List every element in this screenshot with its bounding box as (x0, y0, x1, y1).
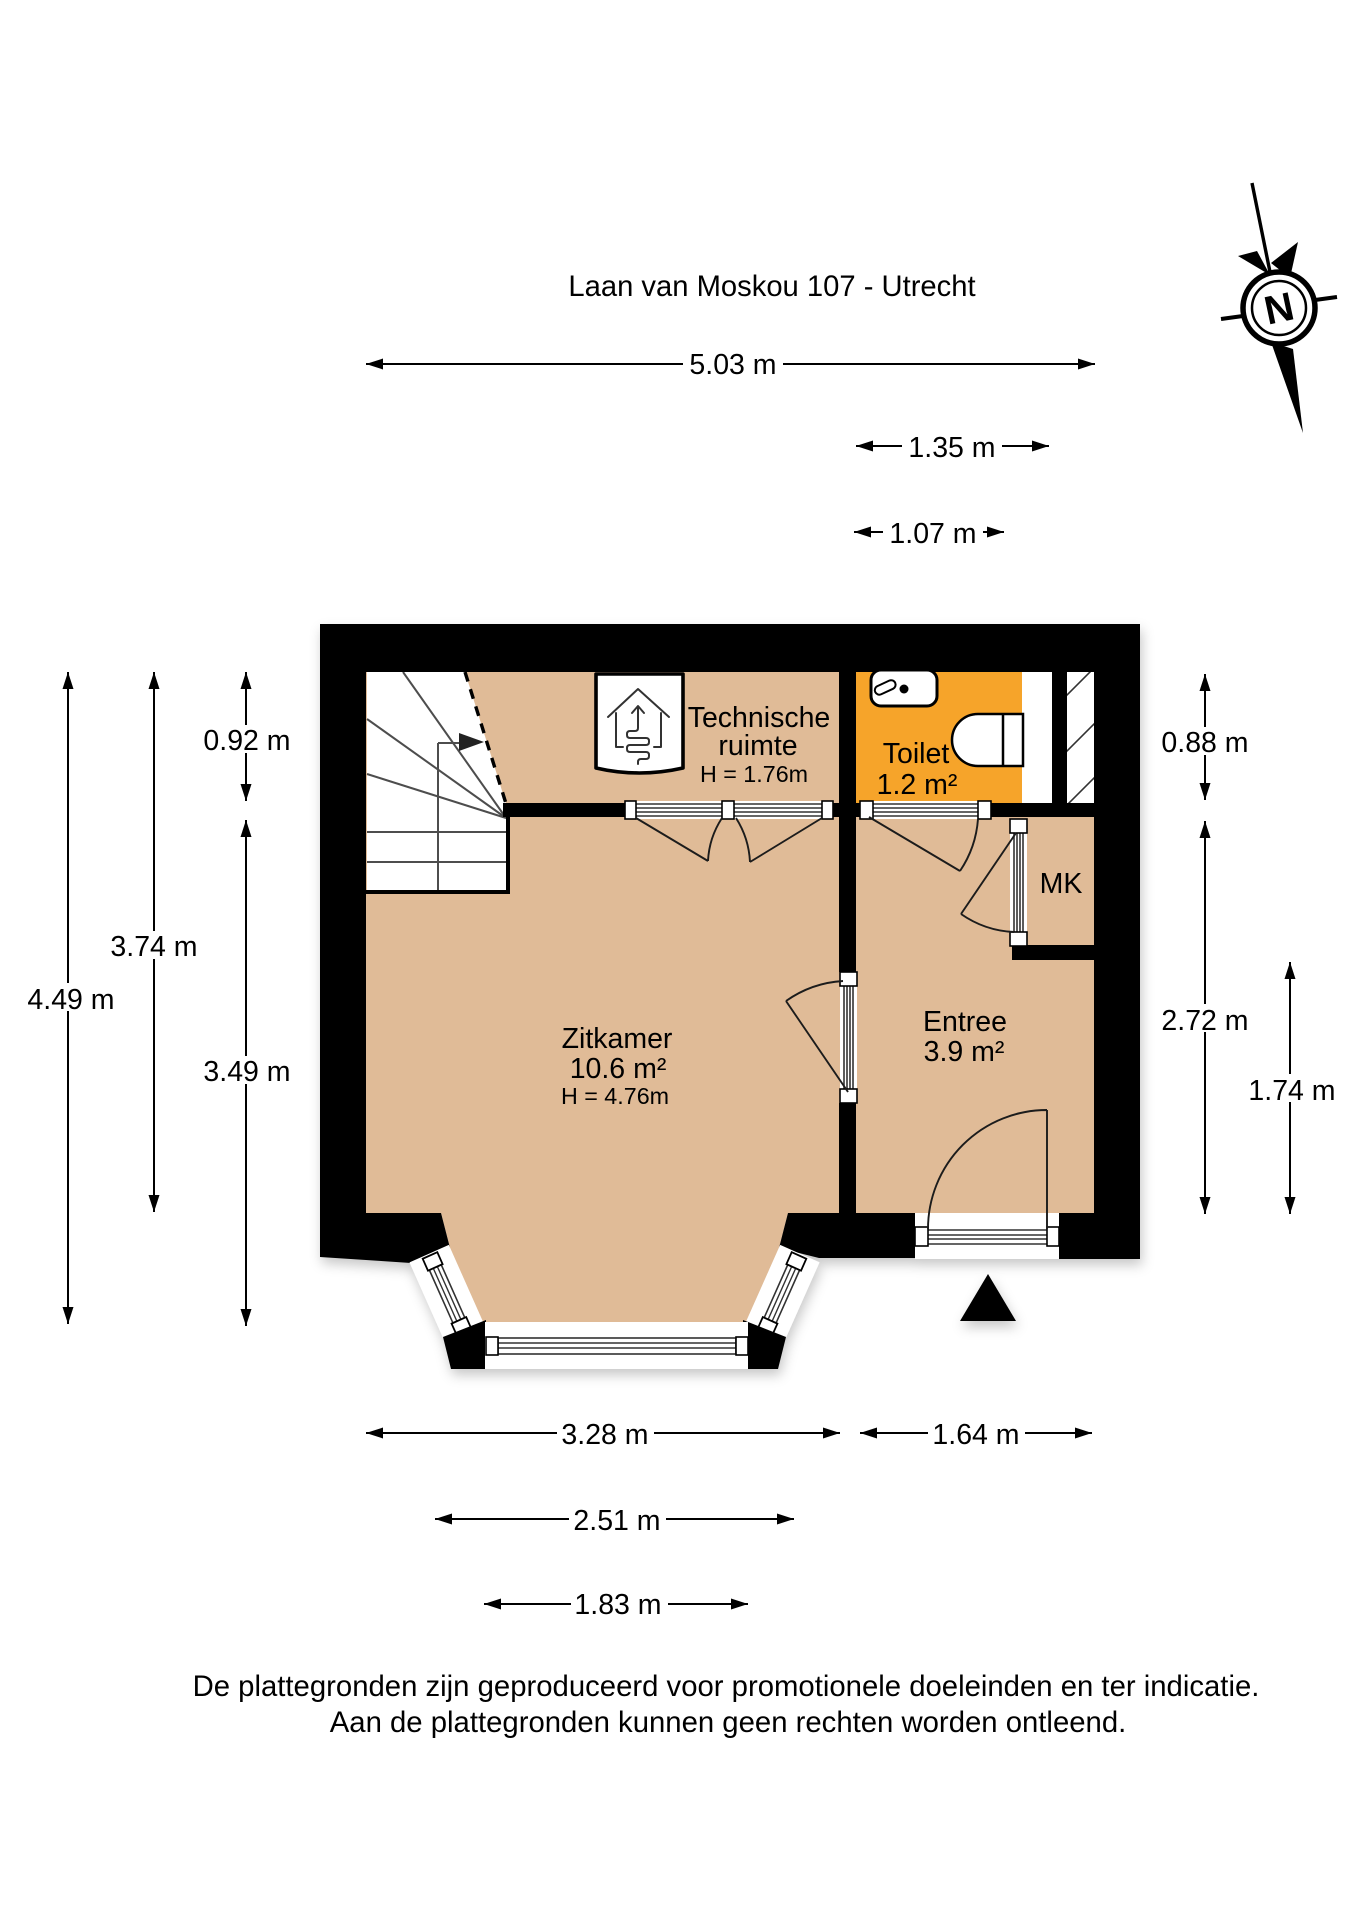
svg-text:1.2 m²: 1.2 m² (877, 769, 958, 801)
svg-text:MK: MK (1040, 868, 1083, 900)
svg-text:3.74 m: 3.74 m (110, 931, 197, 963)
svg-text:1.64 m: 1.64 m (932, 1419, 1019, 1451)
svg-text:3.9 m²: 3.9 m² (924, 1036, 1005, 1068)
svg-text:1.35 m: 1.35 m (908, 432, 995, 464)
svg-text:H = 1.76m: H = 1.76m (700, 761, 808, 787)
svg-text:4.49 m: 4.49 m (27, 984, 114, 1016)
svg-text:1.74 m: 1.74 m (1248, 1075, 1335, 1107)
svg-text:0.88 m: 0.88 m (1161, 727, 1248, 759)
svg-text:2.51 m: 2.51 m (573, 1505, 660, 1537)
svg-text:2.72 m: 2.72 m (1161, 1005, 1248, 1037)
svg-text:3.28 m: 3.28 m (561, 1419, 648, 1451)
svg-text:3.49 m: 3.49 m (203, 1056, 290, 1088)
svg-text:5.03 m: 5.03 m (689, 349, 776, 381)
svg-text:10.6 m²: 10.6 m² (570, 1053, 667, 1085)
svg-text:ruimte: ruimte (718, 730, 797, 762)
svg-text:1.07 m: 1.07 m (889, 518, 976, 550)
svg-text:Toilet: Toilet (883, 738, 950, 770)
svg-text:Zitkamer: Zitkamer (562, 1023, 673, 1055)
svg-text:Entree: Entree (923, 1006, 1007, 1038)
svg-text:H = 4.76m: H = 4.76m (561, 1083, 669, 1109)
svg-text:0.92 m: 0.92 m (203, 725, 290, 757)
svg-text:Aan de plattegronden kunnen ge: Aan de plattegronden kunnen geen rechten… (330, 1706, 1127, 1739)
svg-text:De plattegronden zijn geproduc: De plattegronden zijn geproduceerd voor … (193, 1670, 1260, 1703)
svg-text:1.83 m: 1.83 m (574, 1589, 661, 1621)
svg-text:Laan van Moskou 107 - Utrecht: Laan van Moskou 107 - Utrecht (568, 271, 975, 303)
